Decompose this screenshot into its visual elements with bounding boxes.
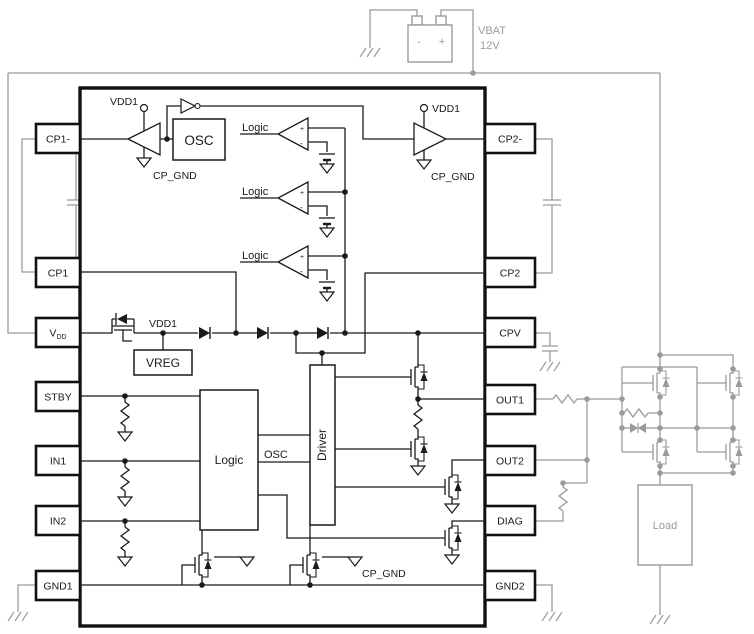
vdd1-terminal-icon (421, 105, 428, 112)
application-circuit-diagram: CP1- CP1 VDD STBY IN1 IN2 GND1 CP2- CP2 … (0, 0, 754, 634)
earth-ground-icon (540, 362, 560, 371)
comparator-label: Logic (242, 122, 269, 134)
svg-text:+: + (300, 254, 304, 261)
cp-gnd-label: CP_GND (153, 170, 197, 182)
pin-label-cp1-minus: CP1- (46, 134, 70, 146)
gate-source-resistor (624, 409, 648, 417)
vbat-voltage-label: 12V (480, 40, 500, 52)
pin-label-diag: DIAG (497, 516, 523, 528)
pin-label-cpv: CPV (499, 328, 521, 340)
svg-text:-: - (300, 203, 303, 212)
bridge-source-rail (660, 466, 733, 485)
pin-label-out2: OUT2 (496, 456, 524, 468)
cp-gnd-label: CP_GND (362, 568, 406, 580)
low-side-fet-right (719, 438, 743, 466)
svg-text:+: + (300, 126, 304, 133)
earth-ground-icon (8, 612, 28, 621)
vreg-label: VREG (146, 356, 180, 370)
osc-signal-label: OSC (264, 449, 288, 461)
gnd2-wire (535, 585, 552, 612)
ic-pins-left: CP1- CP1 VDD STBY IN1 IN2 GND1 (36, 124, 80, 600)
pin-label-out1: OUT1 (496, 395, 524, 407)
gate-resistor (553, 395, 577, 403)
pin-label-cp2-minus: CP2- (498, 134, 522, 146)
gnd1-wire (18, 585, 36, 612)
earth-ground-icon (360, 48, 380, 57)
tvs-zener-diode (630, 423, 646, 433)
inverter-bubble (195, 104, 200, 109)
svg-text:+: + (300, 190, 304, 197)
vdd1-label: VDD1 (110, 96, 138, 108)
pin-label-in1: IN1 (50, 456, 67, 468)
battery-symbol (408, 16, 452, 62)
earth-ground-icon (650, 615, 670, 624)
battery-pos-label: + (439, 36, 445, 48)
load-label: Load (653, 520, 677, 532)
pin-label-gnd2: GND2 (495, 581, 524, 593)
comparator-label: Logic (242, 186, 269, 198)
cp-gnd-label: CP_GND (431, 171, 475, 183)
high-side-fet-left (646, 369, 670, 397)
vdd1-label: VDD1 (149, 318, 177, 330)
out2-gate-wire (535, 399, 587, 483)
high-side-fet-right (719, 369, 743, 397)
vdd1-terminal-icon (141, 105, 148, 112)
pin-label-gnd1: GND1 (43, 581, 72, 593)
pin-label-cp2: CP2 (500, 268, 521, 280)
cp1-loop-wire (22, 139, 36, 272)
cpv-capacitor (535, 333, 558, 362)
circuit-svg: CP1- CP1 VDD STBY IN1 IN2 GND1 CP2- CP2 … (0, 0, 754, 634)
cp2-capacitor (535, 139, 561, 273)
osc-box-label: OSC (184, 133, 214, 148)
pin-label-stby: STBY (44, 392, 71, 404)
ic-pins-right: CP2- CP2 CPV OUT1 OUT2 DIAG GND2 (485, 124, 535, 600)
low-side-fet-left (646, 438, 670, 466)
logic-block-label: Logic (215, 453, 244, 467)
svg-text:-: - (300, 139, 303, 148)
comparator-label: Logic (242, 250, 269, 262)
diag-pullup-wire (535, 483, 587, 521)
pin-label-cp1: CP1 (48, 268, 69, 280)
battery-neg-label: - (417, 36, 421, 48)
svg-text:-: - (300, 267, 303, 276)
earth-ground-icon (542, 612, 562, 621)
vbat-name-label: VBAT (478, 25, 506, 37)
diag-pullup-resistor (559, 487, 567, 511)
fet-gate-leads (622, 383, 719, 452)
pin-label-in2: IN2 (50, 516, 67, 528)
driver-label: Driver (315, 429, 329, 461)
vdd1-label: VDD1 (432, 103, 460, 115)
